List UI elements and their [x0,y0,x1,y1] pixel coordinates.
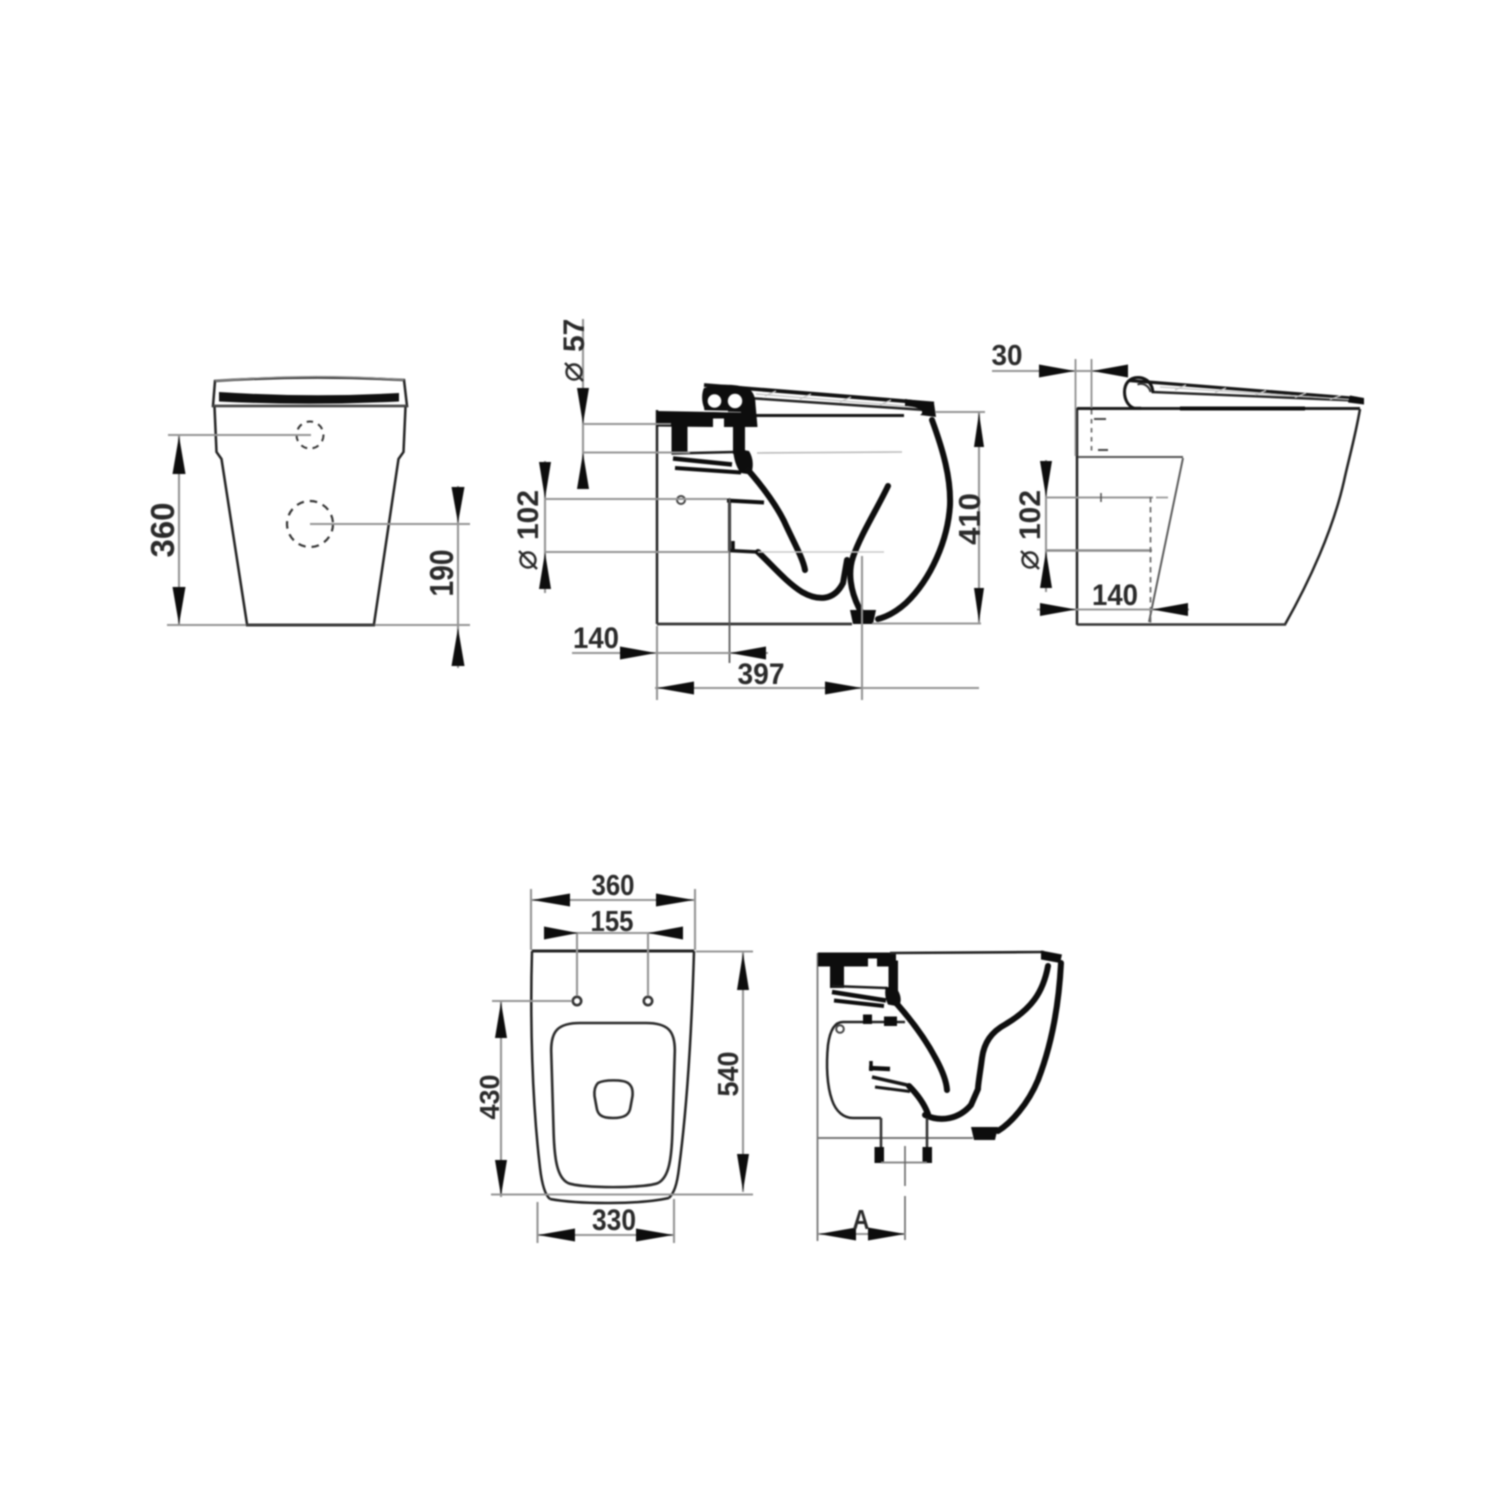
svg-text:410: 410 [952,493,987,545]
svg-text:102: 102 [512,490,545,540]
svg-text:540: 540 [713,1052,745,1097]
svg-text:360: 360 [592,870,635,902]
svg-text:140: 140 [1092,579,1138,612]
svg-text:57: 57 [558,319,591,352]
svg-text:397: 397 [738,658,785,691]
svg-text:140: 140 [573,622,619,655]
svg-text:360: 360 [144,502,181,557]
svg-text:30: 30 [992,340,1023,372]
svg-text:330: 330 [592,1204,636,1237]
svg-text:190: 190 [423,550,460,597]
svg-text:A: A [853,1204,870,1235]
svg-text:102: 102 [1014,490,1047,540]
svg-text:430: 430 [474,1075,505,1120]
svg-text:155: 155 [591,906,634,938]
